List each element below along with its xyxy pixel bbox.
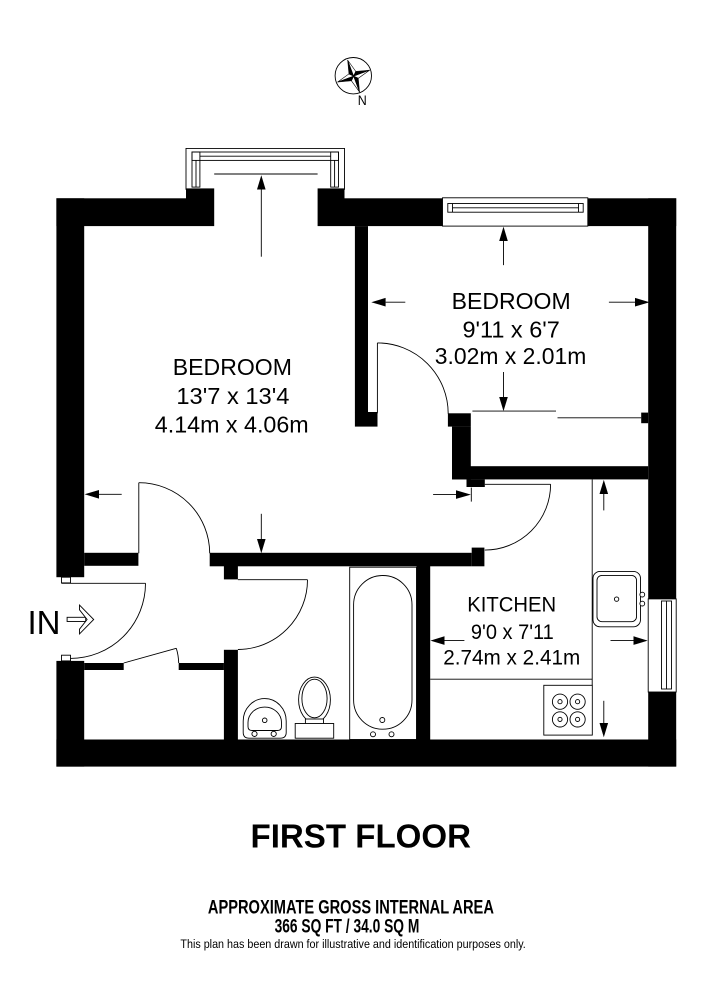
svg-text:BEDROOM: BEDROOM (452, 288, 571, 314)
svg-text:BEDROOM: BEDROOM (173, 354, 292, 380)
svg-text:This plan has been drawn for i: This plan has been drawn for illustrativ… (180, 937, 525, 951)
svg-text:3.02m x 2.01m: 3.02m x 2.01m (435, 343, 587, 369)
svg-text:IN: IN (28, 604, 61, 641)
svg-text:2.74m x 2.41m: 2.74m x 2.41m (443, 646, 580, 669)
svg-text:13'7 x 13'4: 13'7 x 13'4 (176, 383, 289, 409)
svg-text:4.14m x 4.06m: 4.14m x 4.06m (155, 412, 309, 438)
svg-text:9'11 x 6'7: 9'11 x 6'7 (463, 317, 560, 343)
svg-text:FIRST FLOOR: FIRST FLOOR (251, 817, 472, 854)
svg-text:KITCHEN: KITCHEN (467, 593, 556, 616)
svg-text:N: N (358, 93, 367, 108)
svg-text:366 SQ FT / 34.0 SQ M: 366 SQ FT / 34.0 SQ M (275, 915, 420, 937)
svg-text:9'0 x 7'11: 9'0 x 7'11 (471, 621, 554, 644)
